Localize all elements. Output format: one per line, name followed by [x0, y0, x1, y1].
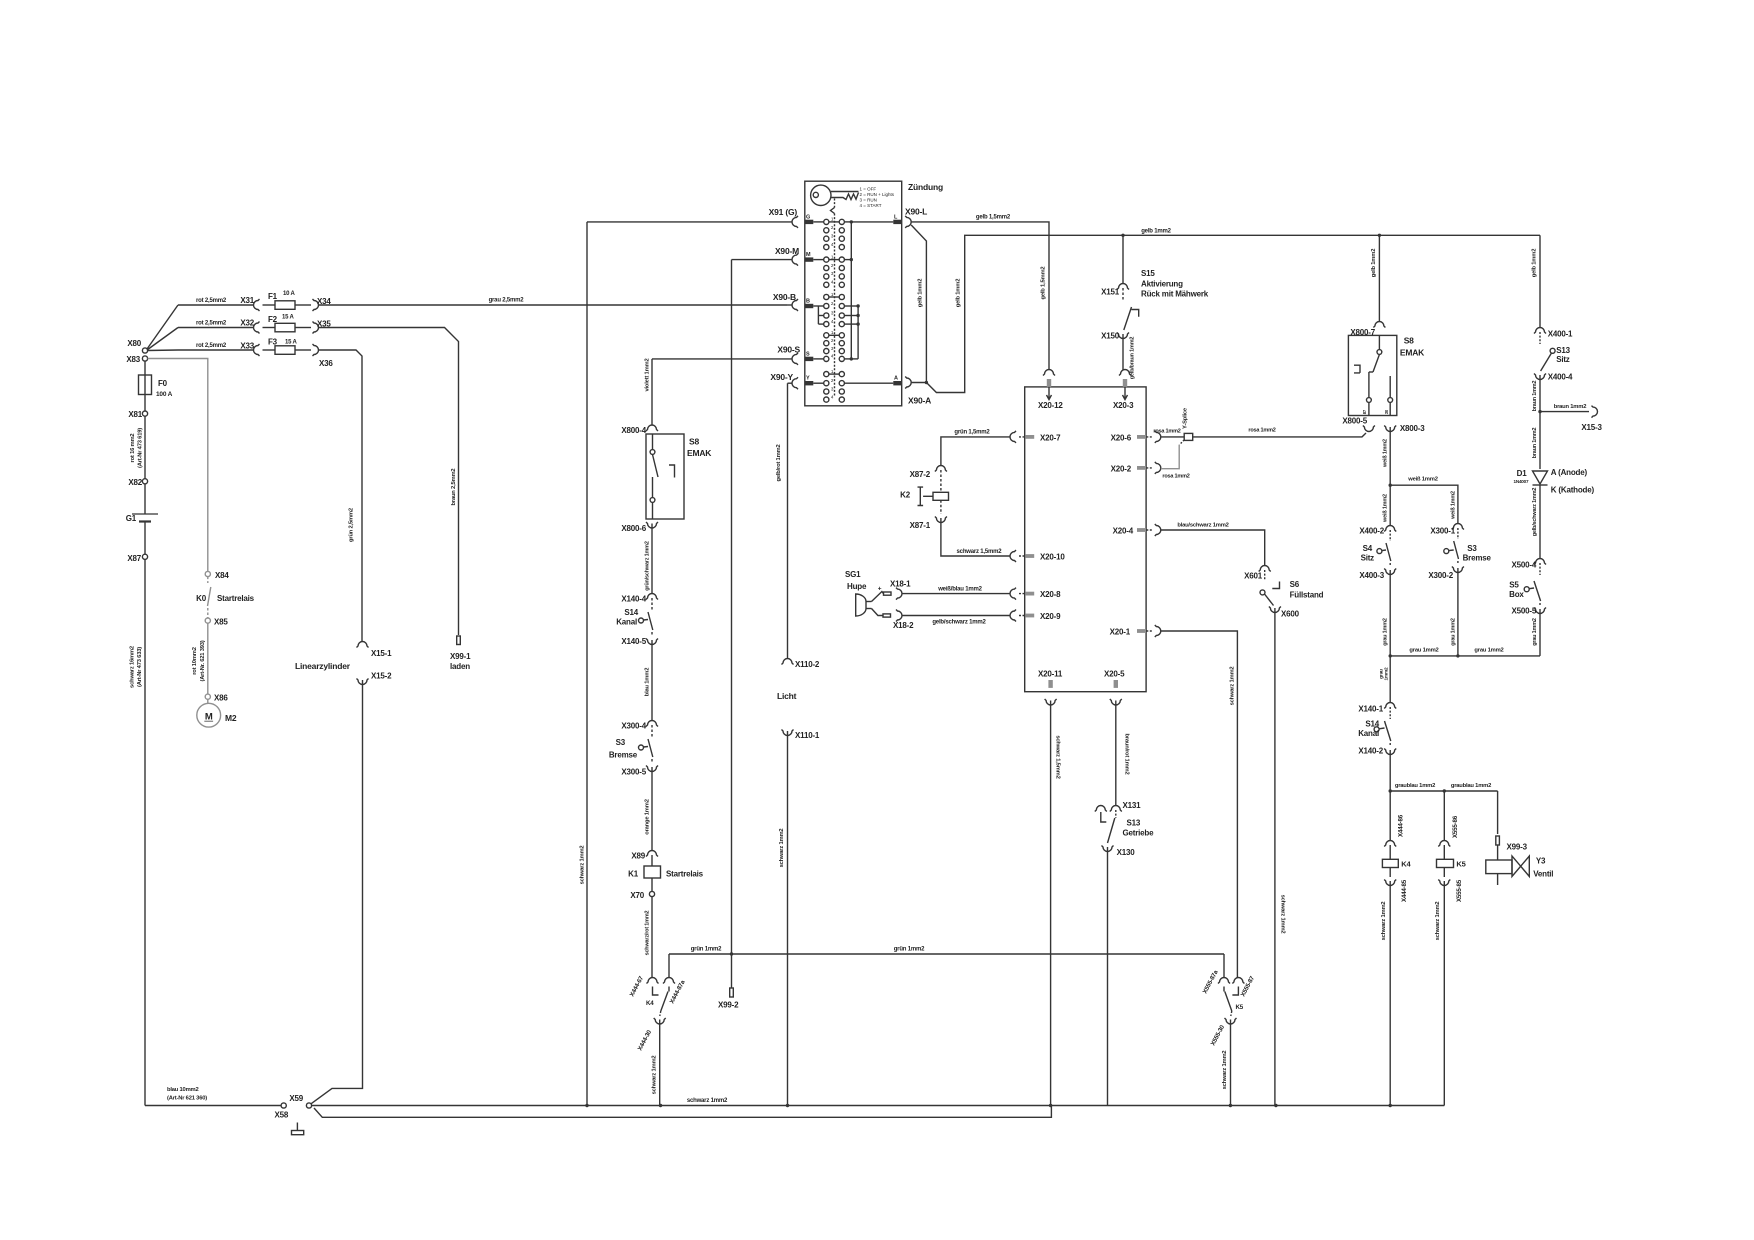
svg-text:gelb 1mm2: gelb 1mm2 [1371, 249, 1377, 277]
svg-text:Y: Y [806, 376, 810, 382]
svg-text:15 A: 15 A [285, 340, 298, 346]
svg-text:X500-4: X500-4 [1511, 561, 1536, 570]
svg-text:K5: K5 [1456, 860, 1465, 869]
svg-text:violett 1mm2: violett 1mm2 [645, 358, 651, 391]
svg-text:1mm2: 1mm2 [1384, 667, 1390, 681]
svg-text:X82: X82 [128, 478, 142, 487]
svg-text:X33: X33 [240, 342, 254, 351]
svg-text:grau 1mm2: grau 1mm2 [1474, 648, 1503, 654]
svg-text:K4: K4 [1401, 860, 1411, 869]
svg-text:grün/schwarz 1mm2: grün/schwarz 1mm2 [645, 541, 651, 591]
svg-text:schwarz 1mm2: schwarz 1mm2 [1435, 902, 1441, 941]
svg-text:rot 2,5mm2: rot 2,5mm2 [196, 298, 227, 304]
svg-text:Kanal: Kanal [616, 618, 637, 627]
svg-text:schwarz 1mm2: schwarz 1mm2 [687, 1098, 728, 1104]
svg-text:M2: M2 [225, 713, 237, 723]
svg-text:rot 2,5mm2: rot 2,5mm2 [196, 343, 227, 349]
svg-text:S: S [806, 351, 810, 357]
svg-text:grau 1mm2: grau 1mm2 [1532, 618, 1538, 646]
svg-text:gelb/schwarz 1mm2: gelb/schwarz 1mm2 [932, 620, 986, 626]
svg-text:A (Anode): A (Anode) [1551, 468, 1588, 477]
svg-text:X99-1: X99-1 [450, 652, 471, 661]
svg-text:Bremse: Bremse [609, 751, 638, 760]
svg-text:X20-9: X20-9 [1040, 612, 1061, 621]
svg-text:X555-86: X555-86 [1452, 815, 1459, 838]
svg-text:EMAK: EMAK [687, 448, 712, 458]
svg-text:gelb/rot 1mm2: gelb/rot 1mm2 [776, 444, 782, 481]
svg-text:blau 1mm2: blau 1mm2 [645, 668, 651, 696]
svg-text:X800-5: X800-5 [1342, 417, 1367, 426]
svg-text:Startrelais: Startrelais [666, 870, 704, 879]
svg-text:15 A: 15 A [282, 315, 295, 321]
svg-text:S14: S14 [1365, 720, 1379, 729]
svg-text:(Art-Nr 621 360): (Art-Nr 621 360) [167, 1096, 207, 1102]
svg-text:F0: F0 [158, 379, 168, 388]
svg-text:4 = START: 4 = START [860, 203, 882, 208]
svg-text:3: 3 [831, 346, 834, 351]
svg-text:Bremse: Bremse [1463, 554, 1492, 563]
svg-text:rosa 1mm2: rosa 1mm2 [1162, 474, 1189, 480]
svg-text:X151: X151 [1101, 288, 1120, 297]
svg-text:X99-3: X99-3 [1507, 843, 1528, 852]
svg-text:X80: X80 [127, 339, 141, 348]
svg-text:X87: X87 [127, 554, 141, 563]
svg-text:schwarz 1mm2: schwarz 1mm2 [580, 846, 586, 885]
svg-text:X58: X58 [275, 1111, 289, 1120]
svg-text:X89: X89 [631, 852, 645, 861]
svg-text:X400-4: X400-4 [1548, 373, 1573, 382]
svg-text:X20-2: X20-2 [1111, 465, 1132, 474]
svg-text:G1: G1 [126, 514, 137, 523]
svg-text:2 = RUN + Lights: 2 = RUN + Lights [860, 192, 895, 197]
svg-text:X90-M: X90-M [775, 246, 799, 256]
svg-text:X110-2: X110-2 [795, 660, 820, 669]
svg-text:K4: K4 [646, 1000, 654, 1007]
svg-text:1N4007: 1N4007 [1513, 479, 1529, 484]
svg-text:100 A: 100 A [156, 391, 173, 398]
svg-text:3: 3 [831, 271, 834, 276]
svg-text:Box: Box [1509, 590, 1524, 599]
svg-text:Sitz: Sitz [1556, 355, 1570, 364]
svg-text:X110-1: X110-1 [795, 731, 820, 740]
svg-text:S6: S6 [1290, 580, 1300, 589]
svg-text:Hupe: Hupe [847, 582, 867, 591]
svg-text:X600: X600 [1281, 610, 1300, 619]
svg-text:3: 3 [831, 310, 834, 315]
svg-text:X20-6: X20-6 [1111, 434, 1132, 443]
svg-text:Getriebe: Getriebe [1123, 829, 1155, 838]
svg-text:Füllstand: Füllstand [1290, 591, 1324, 600]
svg-text:A: A [894, 376, 898, 382]
svg-text:gelb 1mm2: gelb 1mm2 [1141, 229, 1171, 235]
svg-text:orange 1mm2: orange 1mm2 [645, 799, 651, 835]
svg-text:X20-5: X20-5 [1104, 670, 1125, 679]
svg-text:X18-2: X18-2 [893, 621, 914, 630]
svg-text:X87-1: X87-1 [910, 521, 931, 530]
svg-text:X15-2: X15-2 [371, 672, 392, 681]
svg-text:grau 2,5mm2: grau 2,5mm2 [489, 298, 525, 304]
svg-text:braun/rot 1mm2: braun/rot 1mm2 [1124, 733, 1130, 774]
svg-text:schwarz 16mm2: schwarz 16mm2 [130, 646, 136, 688]
svg-text:X140-2: X140-2 [1358, 747, 1383, 756]
svg-text:X15-3: X15-3 [1581, 423, 1602, 432]
svg-text:X15-1: X15-1 [371, 649, 392, 658]
svg-text:gelb 1,5mm2: gelb 1,5mm2 [1041, 267, 1047, 300]
svg-text:B: B [806, 299, 810, 305]
svg-text:X20-7: X20-7 [1040, 434, 1061, 443]
svg-text:X150: X150 [1101, 332, 1120, 341]
svg-text:2: 2 [831, 338, 834, 343]
svg-text:weiß 1mm2: weiß 1mm2 [1450, 491, 1456, 520]
svg-text:X300-1: X300-1 [1430, 527, 1455, 536]
svg-text:weiß 1mm2: weiß 1mm2 [1407, 477, 1437, 483]
svg-text:1: 1 [831, 330, 834, 335]
svg-text:4: 4 [831, 319, 834, 324]
svg-text:G: G [806, 214, 810, 220]
svg-text:2: 2 [831, 301, 834, 306]
svg-text:S5: S5 [1509, 581, 1519, 590]
svg-text:F2: F2 [268, 315, 278, 324]
svg-text:X90-L: X90-L [905, 207, 927, 217]
svg-text:X555-85: X555-85 [1456, 879, 1463, 902]
svg-text:S8: S8 [1404, 336, 1414, 346]
svg-text:1: 1 [831, 292, 834, 297]
svg-text:K (Kathode): K (Kathode) [1551, 486, 1595, 495]
svg-text:S13: S13 [1556, 346, 1570, 355]
svg-text:S15: S15 [1141, 269, 1155, 278]
svg-text:2: 2 [831, 378, 834, 383]
svg-text:X31: X31 [240, 296, 254, 305]
svg-text:gelb 1,5mm2: gelb 1,5mm2 [976, 215, 1011, 221]
svg-text:rot 10mm2: rot 10mm2 [192, 647, 198, 675]
svg-text:X70: X70 [630, 891, 644, 900]
svg-text:X87-2: X87-2 [910, 470, 931, 479]
svg-text:gelb/schwarz 1mm2: gelb/schwarz 1mm2 [1532, 488, 1538, 537]
svg-text:S4: S4 [1363, 544, 1373, 553]
svg-text:K5: K5 [1236, 1004, 1244, 1011]
svg-text:SG1: SG1 [845, 570, 861, 579]
svg-text:X130: X130 [1117, 848, 1136, 857]
svg-text:gelb/braun 1mm2: gelb/braun 1mm2 [1130, 337, 1136, 380]
svg-text:X81: X81 [128, 410, 142, 419]
svg-text:schwarz/rot 1mm2: schwarz/rot 1mm2 [645, 910, 651, 955]
svg-text:gelb 1mm2: gelb 1mm2 [1532, 249, 1538, 277]
svg-text:graublau 1mm2: graublau 1mm2 [1395, 783, 1435, 789]
svg-text:1: 1 [831, 369, 834, 374]
svg-text:X84: X84 [215, 571, 229, 580]
svg-text:braun 2,5mm2: braun 2,5mm2 [451, 469, 457, 506]
svg-text:X18-1: X18-1 [890, 580, 911, 589]
svg-text:grau 1mm2: grau 1mm2 [1383, 618, 1389, 646]
svg-text:X83: X83 [126, 355, 140, 364]
svg-text:10 A: 10 A [283, 291, 296, 297]
svg-text:X300-2: X300-2 [1428, 571, 1453, 580]
svg-text:K1: K1 [628, 870, 639, 879]
svg-text:+: + [878, 586, 882, 593]
svg-text:F1: F1 [268, 292, 278, 301]
svg-text:X140-1: X140-1 [1358, 705, 1383, 714]
svg-text:3 = RUN: 3 = RUN [860, 198, 877, 203]
svg-text:X20-1: X20-1 [1110, 628, 1131, 637]
svg-text:Aktivierung: Aktivierung [1141, 280, 1183, 289]
svg-text:X300-4: X300-4 [621, 722, 646, 731]
svg-text:S3: S3 [1467, 544, 1477, 553]
svg-text:rot 16 mm2: rot 16 mm2 [130, 434, 136, 463]
svg-text:1 = OFF: 1 = OFF [860, 187, 877, 192]
svg-text:Zündung: Zündung [908, 182, 943, 192]
svg-text:weiß/blau 1mm2: weiß/blau 1mm2 [937, 587, 982, 593]
svg-text:S3: S3 [616, 738, 626, 747]
svg-text:X91 (G): X91 (G) [769, 207, 798, 217]
svg-text:Ventil: Ventil [1533, 870, 1553, 879]
svg-text:2: 2 [831, 263, 834, 268]
svg-text:schwarz 1mm2: schwarz 1mm2 [1230, 667, 1236, 706]
svg-text:blau 10mm2: blau 10mm2 [167, 1087, 199, 1093]
svg-text:grün 2,5mm2: grün 2,5mm2 [349, 508, 355, 542]
svg-text:X90-B: X90-B [773, 292, 796, 302]
svg-text:Rück mit Mähwerk: Rück mit Mähwerk [1141, 290, 1209, 299]
svg-text:grün 1mm2: grün 1mm2 [691, 947, 722, 953]
svg-text:grün 1mm2: grün 1mm2 [894, 947, 925, 953]
svg-text:(Art-Nr 473 633): (Art-Nr 473 633) [137, 647, 143, 687]
svg-text:Startrelais: Startrelais [217, 594, 255, 603]
svg-text:X20-3: X20-3 [1113, 401, 1134, 410]
svg-text:X90-A: X90-A [908, 396, 931, 406]
svg-text:braun 1mm2: braun 1mm2 [1554, 404, 1586, 410]
svg-text:X800-6: X800-6 [621, 524, 646, 533]
svg-text:2: 2 [831, 225, 834, 230]
svg-text:schwarz 1mm2: schwarz 1mm2 [652, 1056, 658, 1095]
svg-text:Y3: Y3 [1536, 857, 1546, 866]
svg-text:Sitz: Sitz [1361, 554, 1375, 563]
svg-text:schwarz 1mm2: schwarz 1mm2 [1280, 895, 1286, 934]
svg-text:X131: X131 [1123, 801, 1142, 810]
svg-text:X400-1: X400-1 [1548, 330, 1573, 339]
svg-text:X800-4: X800-4 [621, 426, 646, 435]
svg-text:rot 2,5mm2: rot 2,5mm2 [196, 321, 227, 327]
svg-text:gelb 1mm2: gelb 1mm2 [918, 279, 924, 307]
svg-text:grau 1mm2: grau 1mm2 [1450, 618, 1456, 646]
svg-text:X400-3: X400-3 [1359, 571, 1384, 580]
svg-text:X85: X85 [214, 618, 228, 627]
svg-text:X800-3: X800-3 [1400, 424, 1425, 433]
svg-text:M: M [806, 252, 811, 258]
svg-text:S13: S13 [1127, 819, 1141, 828]
svg-text:X59: X59 [289, 1094, 303, 1103]
svg-text:grün 1,5mm2: grün 1,5mm2 [954, 430, 990, 436]
svg-text:weiß 1mm2: weiß 1mm2 [1383, 494, 1389, 523]
svg-text:3: 3 [831, 386, 834, 391]
svg-text:K0: K0 [196, 594, 207, 603]
svg-text:X140-4: X140-4 [621, 595, 646, 604]
svg-text:K2: K2 [900, 491, 911, 500]
svg-text:Y-Splice: Y-Splice [1183, 407, 1189, 429]
svg-text:X20-12: X20-12 [1038, 401, 1063, 410]
svg-text:(Art-Nr 473 619): (Art-Nr 473 619) [138, 428, 144, 468]
svg-text:grau 1mm2: grau 1mm2 [1409, 648, 1438, 654]
svg-text:weiß 1mm2: weiß 1mm2 [1383, 439, 1389, 468]
svg-text:4: 4 [831, 354, 834, 359]
svg-text:schwarz 1mm2: schwarz 1mm2 [1222, 1051, 1228, 1090]
svg-text:schwarz 1mm2: schwarz 1mm2 [1381, 902, 1387, 941]
svg-text:braun 1mm2: braun 1mm2 [1532, 381, 1538, 412]
svg-text:Linearzylinder: Linearzylinder [295, 661, 351, 671]
svg-text:X444-86: X444-86 [1398, 814, 1405, 837]
svg-text:rosa 1mm2: rosa 1mm2 [1248, 428, 1275, 434]
svg-text:schwarz 1mm2: schwarz 1mm2 [779, 829, 785, 868]
svg-text:X32: X32 [240, 319, 254, 328]
svg-text:EMAK: EMAK [1400, 348, 1425, 358]
svg-text:X36: X36 [319, 359, 333, 368]
svg-text:X300-5: X300-5 [621, 768, 646, 777]
svg-text:S14: S14 [624, 608, 638, 617]
svg-text:X99-2: X99-2 [718, 1001, 739, 1010]
svg-text:X400-2: X400-2 [1359, 527, 1384, 536]
svg-text:rosa 1mm2: rosa 1mm2 [1153, 429, 1180, 435]
svg-text:4: 4 [831, 242, 834, 247]
svg-text:X86: X86 [214, 694, 228, 703]
svg-text:schwarz 1,5mm2: schwarz 1,5mm2 [1055, 735, 1061, 778]
svg-text:graublau 1mm2: graublau 1mm2 [1451, 783, 1491, 789]
svg-text:X90-S: X90-S [777, 345, 800, 355]
svg-text:X20-10: X20-10 [1040, 553, 1065, 562]
svg-text:Licht: Licht [777, 691, 797, 701]
svg-text:X20-8: X20-8 [1040, 590, 1061, 599]
svg-text:Kanal: Kanal [1358, 729, 1379, 738]
svg-text:(Art-Nr. 621 393): (Art-Nr. 621 393) [200, 640, 206, 681]
svg-text:4: 4 [831, 280, 834, 285]
svg-text:X500-5: X500-5 [1511, 607, 1536, 616]
svg-text:3: 3 [831, 234, 834, 239]
svg-text:blau/schwarz 1mm2: blau/schwarz 1mm2 [1177, 523, 1228, 529]
svg-text:schwarz 1,5mm2: schwarz 1,5mm2 [957, 549, 1003, 555]
svg-text:F3: F3 [268, 338, 278, 347]
svg-text:X601: X601 [1244, 572, 1263, 581]
svg-text:braun 1mm2: braun 1mm2 [1532, 428, 1538, 459]
svg-text:4: 4 [831, 394, 834, 399]
svg-text:1: 1 [831, 217, 834, 222]
svg-text:X444-85: X444-85 [1401, 879, 1408, 902]
svg-text:X140-5: X140-5 [621, 637, 646, 646]
svg-text:1: 1 [831, 254, 834, 259]
svg-text:S8: S8 [689, 437, 699, 447]
svg-text:D1: D1 [1517, 469, 1528, 478]
svg-text:X90-Y: X90-Y [770, 372, 793, 382]
svg-text:X20-11: X20-11 [1038, 670, 1063, 679]
svg-text:X20-4: X20-4 [1113, 527, 1134, 536]
svg-text:laden: laden [450, 662, 470, 671]
svg-text:gelb 1mm2: gelb 1mm2 [956, 279, 962, 307]
